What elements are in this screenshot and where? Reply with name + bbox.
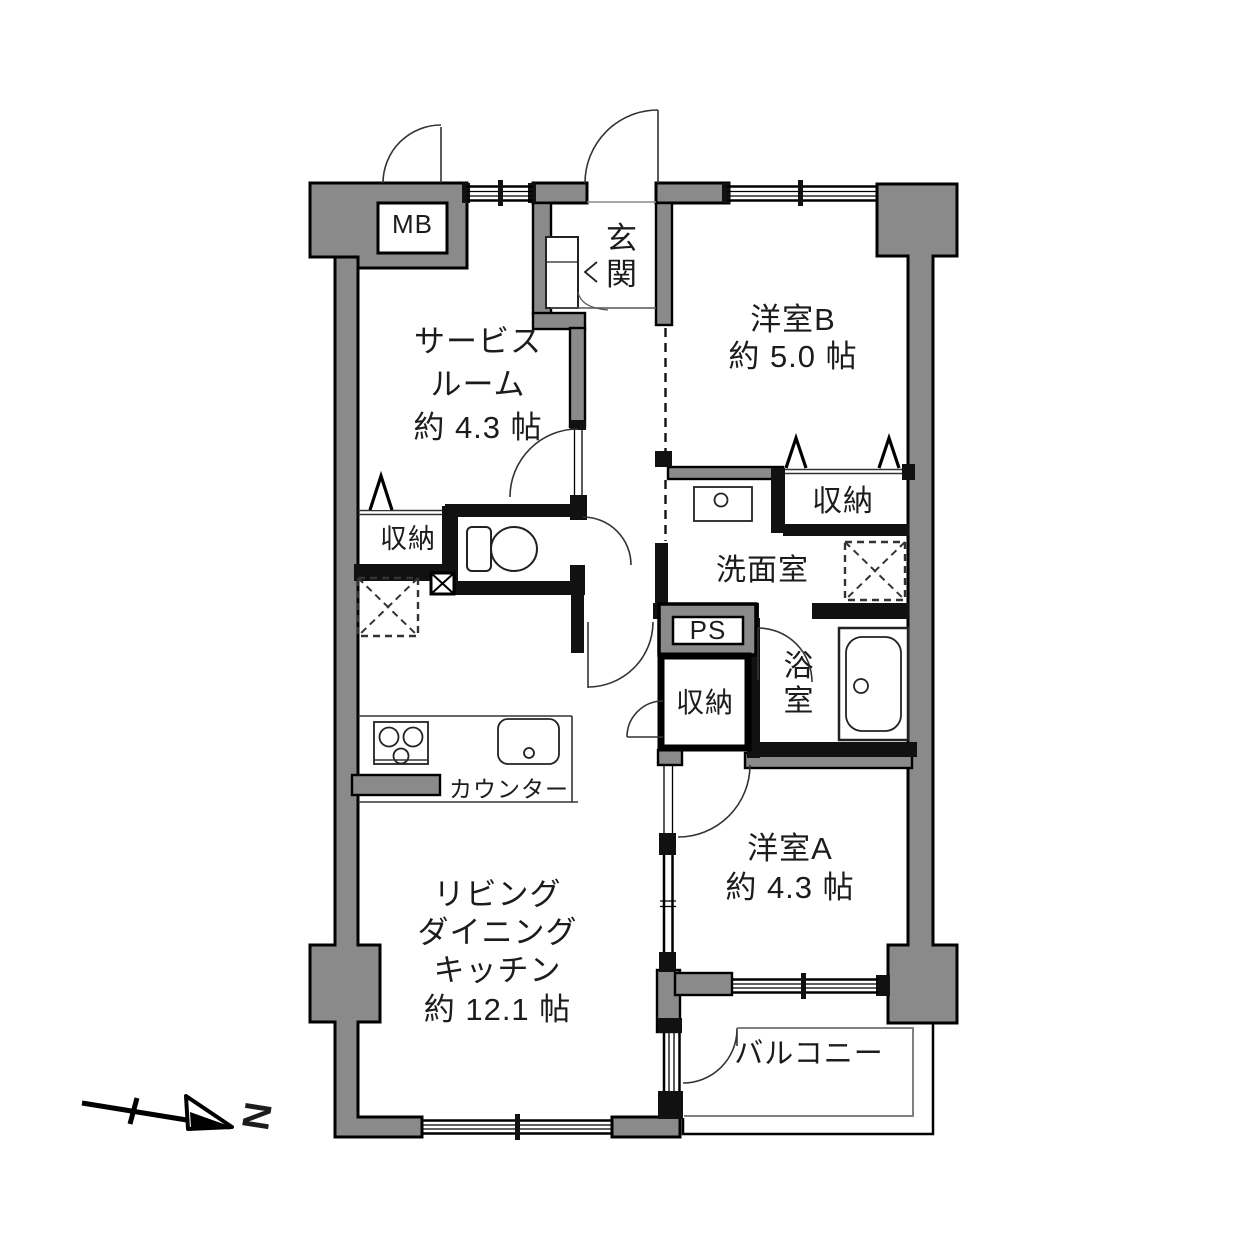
label-western-room-a: 洋室A xyxy=(695,831,885,867)
label-ldk-2: ダイニング xyxy=(388,915,607,951)
folding-door-icon xyxy=(786,438,806,468)
label-balcony: バルコニー xyxy=(733,1038,885,1071)
washer-space xyxy=(845,542,905,600)
label-service-room-2: ルーム xyxy=(388,367,568,403)
compass-arrow-icon xyxy=(82,1096,232,1129)
folding-door-icon xyxy=(370,476,392,510)
duct-box xyxy=(431,573,454,594)
label-service-room-area: 約 4.3 帖 xyxy=(378,410,578,446)
label-ldk-3: キッチン xyxy=(395,953,600,989)
label-western-room-a-area: 約 4.3 帖 xyxy=(685,870,895,906)
label-washroom: 洗面室 xyxy=(705,554,820,589)
label-western-room-b-closet: 収納 xyxy=(803,485,883,520)
bathtub-icon xyxy=(839,628,908,740)
label-service-room-closet: 収納 xyxy=(369,524,447,555)
label-kitchen-counter: カウンター xyxy=(446,776,572,802)
label-compass-north: N xyxy=(230,1091,280,1141)
washbasin-icon xyxy=(694,487,752,521)
floorplan-canvas: MB 玄関 洋室B 約 5.0 帖 サービス ルーム 約 4.3 帖 収納 収納… xyxy=(0,0,1256,1256)
refrigerator-space xyxy=(358,578,418,636)
label-ldk-1: リビング xyxy=(395,877,600,913)
label-western-room-b-area: 約 5.0 帖 xyxy=(683,339,903,375)
label-pipe-space: PS xyxy=(673,616,743,646)
label-western-room-b: 洋室B xyxy=(698,302,888,338)
floorplan-drawing xyxy=(0,0,1256,1256)
label-bathroom: 浴室 xyxy=(782,650,816,719)
label-meter-box: MB xyxy=(378,210,447,240)
label-entrance: 玄関 xyxy=(604,221,640,292)
label-service-room-1: サービス xyxy=(388,324,568,360)
label-hallway-closet: 収納 xyxy=(668,687,742,719)
folding-door-icon xyxy=(879,438,899,468)
toilet-icon xyxy=(467,527,537,571)
label-ldk-area: 約 12.1 帖 xyxy=(378,992,617,1028)
